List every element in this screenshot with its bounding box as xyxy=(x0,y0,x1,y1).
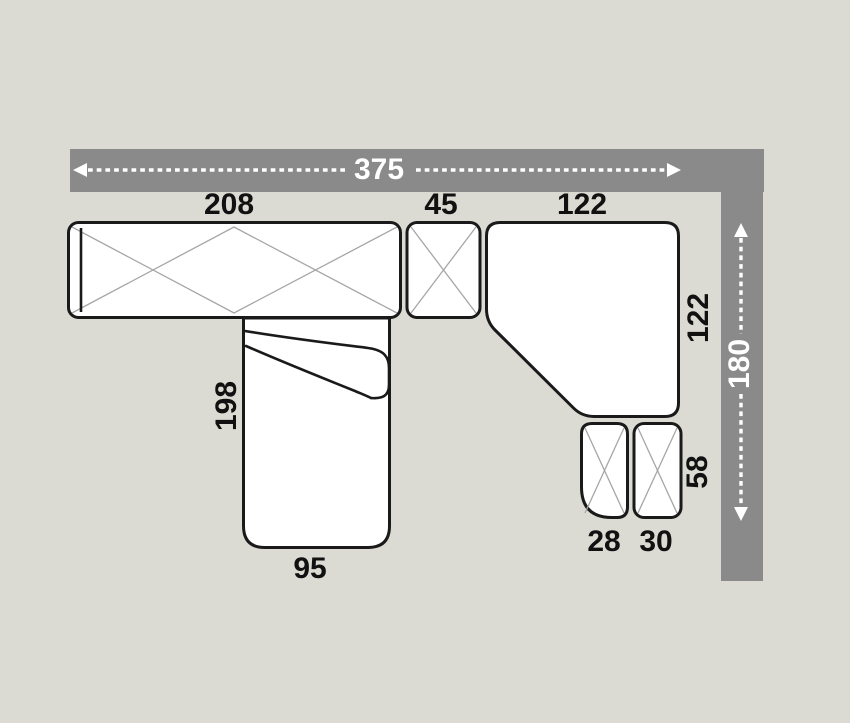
pouf-large-width-label: 30 xyxy=(639,527,672,557)
corner-width-label: 122 xyxy=(557,190,607,220)
corner-piece xyxy=(487,223,679,417)
connector-width-label: 45 xyxy=(424,190,457,220)
total-width-label: 375 xyxy=(354,155,404,185)
pouf-depth-label: 58 xyxy=(683,455,713,488)
total-depth-label: 180 xyxy=(725,339,755,389)
floorplan-diagram: 375 208 45 122 122 180 198 95 28 30 58 xyxy=(0,0,850,723)
chaise-length-label: 198 xyxy=(212,381,242,431)
corner-depth-label: 122 xyxy=(684,293,714,343)
pouf-small-width-label: 28 xyxy=(587,527,620,557)
sofa-piece xyxy=(69,223,401,318)
chaise-width-label: 95 xyxy=(293,554,326,584)
chaise-piece xyxy=(244,318,390,548)
sofa-width-label: 208 xyxy=(204,190,254,220)
